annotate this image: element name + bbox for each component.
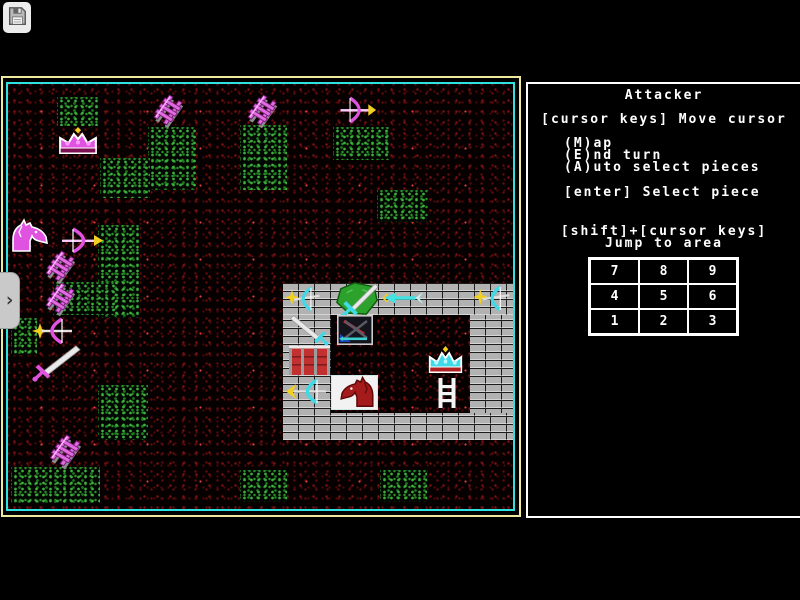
piece-shield-defender[interactable] xyxy=(333,281,380,318)
piece-crown-defender[interactable] xyxy=(427,346,464,377)
piece-knight-attacker[interactable] xyxy=(9,219,51,252)
chevron-right-icon: › xyxy=(4,291,15,310)
instruction-move-cursor: [cursor keys] Move cursor xyxy=(528,113,800,126)
piece-ladder-white[interactable] xyxy=(436,377,458,409)
terrain-forest-patch xyxy=(148,127,196,190)
terrain-forest-patch xyxy=(98,385,148,440)
piece-arrow-defender[interactable] xyxy=(382,289,424,307)
piece-crown-attacker[interactable] xyxy=(57,127,99,158)
piece-ladder[interactable] xyxy=(152,96,184,126)
piece-ladder[interactable] xyxy=(246,96,278,126)
piece-bow-attacker[interactable] xyxy=(58,227,104,254)
jump-area-grid: 789456123 xyxy=(588,257,739,336)
terrain-forest-patch xyxy=(333,127,390,160)
piece-bow-defender[interactable] xyxy=(285,284,323,314)
terrain-forest-patch xyxy=(100,158,150,198)
game-board-frame xyxy=(1,76,521,517)
jump-area-3[interactable]: 3 xyxy=(688,309,737,334)
piece-bow-defender[interactable] xyxy=(284,376,330,407)
terrain-forest-patch xyxy=(240,470,287,502)
piece-barricade[interactable] xyxy=(288,344,331,376)
piece-knight-defender[interactable] xyxy=(331,375,378,410)
jump-area-9[interactable]: 9 xyxy=(688,259,737,284)
jump-area-6[interactable]: 6 xyxy=(688,284,737,309)
piece-bow-attacker[interactable] xyxy=(337,96,377,124)
terrain-forest-patch xyxy=(11,467,100,503)
piece-sword-attacker[interactable] xyxy=(28,344,80,382)
battlefield[interactable] xyxy=(6,82,515,511)
jump-area-1[interactable]: 1 xyxy=(590,309,639,334)
jump-area-4[interactable]: 4 xyxy=(590,284,639,309)
terrain-forest-patch xyxy=(377,190,428,222)
save-button[interactable] xyxy=(3,2,31,33)
piece-bow-attacker[interactable] xyxy=(30,316,76,346)
jump-area-7[interactable]: 7 xyxy=(590,259,639,284)
instruction-jump-label: Jump to area xyxy=(528,237,800,250)
turn-title: Attacker xyxy=(528,89,800,102)
left-drawer-tab[interactable]: › xyxy=(0,272,20,329)
jump-area-5[interactable]: 5 xyxy=(639,284,688,309)
piece-ladder[interactable] xyxy=(44,284,76,314)
terrain-forest-patch xyxy=(57,97,100,126)
command-panel: Attacker [cursor keys] Move cursor (M)ap… xyxy=(526,82,800,518)
piece-sword-defender[interactable] xyxy=(290,314,332,346)
terrain-forest-patch xyxy=(240,125,287,190)
piece-ladder[interactable] xyxy=(48,436,82,467)
castle-wall xyxy=(283,413,513,440)
piece-ladder[interactable] xyxy=(44,252,76,282)
piece-bow-defender[interactable] xyxy=(473,283,513,314)
floppy-icon xyxy=(6,5,28,30)
jump-area-2[interactable]: 2 xyxy=(639,309,688,334)
jump-area-8[interactable]: 8 xyxy=(639,259,688,284)
piece-battle-tile[interactable] xyxy=(337,315,373,345)
terrain-forest-patch xyxy=(380,470,427,502)
command-auto-select: (A)uto select pieces xyxy=(564,161,761,174)
command-select-piece: [enter] Select piece xyxy=(564,186,761,199)
